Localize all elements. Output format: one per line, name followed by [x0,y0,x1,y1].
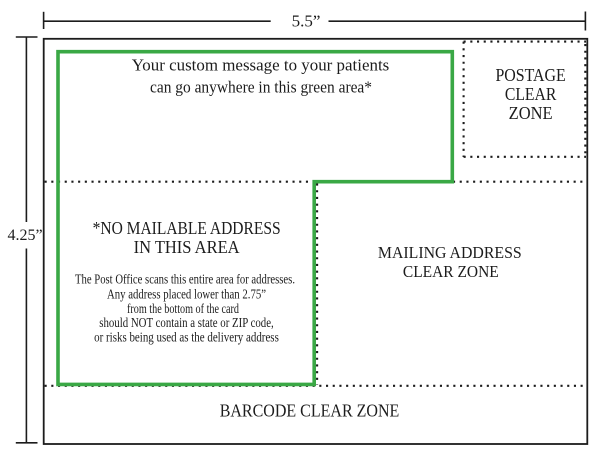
svg-text:can go anywhere in this green: can go anywhere in this green area* [150,78,372,97]
svg-text:from the bottom of the card: from the bottom of the card [127,301,239,316]
svg-text:ZONE: ZONE [509,103,553,123]
svg-text:5.5”: 5.5” [292,12,321,31]
svg-text:Your custom message to your pa: Your custom message to your patients [132,55,390,74]
svg-text:CLEAR ZONE: CLEAR ZONE [403,262,499,281]
svg-text:CLEAR: CLEAR [505,84,557,104]
svg-text:Any address placed lower than: Any address placed lower than 2.75” [107,287,266,302]
svg-text:MAILING ADDRESS: MAILING ADDRESS [378,243,522,262]
svg-text:or risks being used as the del: or risks being used as the delivery addr… [94,329,279,344]
svg-text:BARCODE CLEAR ZONE: BARCODE CLEAR ZONE [220,401,400,421]
svg-text:The Post Office scans this ent: The Post Office scans this entire area f… [75,272,295,287]
svg-text:*NO MAILABLE ADDRESS: *NO MAILABLE ADDRESS [93,218,281,238]
svg-text:POSTAGE: POSTAGE [495,65,565,85]
svg-text:4.25”: 4.25” [7,227,42,244]
svg-text:should NOT contain a state or: should NOT contain a state or ZIP code, [99,315,274,330]
svg-text:IN THIS AREA: IN THIS AREA [134,237,240,257]
